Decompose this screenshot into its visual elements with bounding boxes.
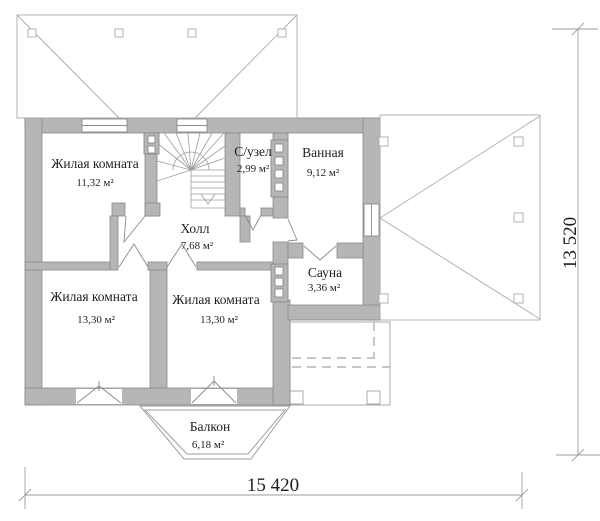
shaft-duct (275, 278, 283, 286)
wall-wc-south (240, 208, 245, 216)
roof-right-hip-line (380, 116, 540, 218)
room-area-bathroom: 9,12 м² (307, 167, 340, 179)
stair-direction-arrow (201, 194, 215, 204)
roof-post (514, 294, 523, 303)
wall-left (25, 118, 42, 405)
wall-bottom-rooms-partition (150, 270, 167, 388)
room-area-living-top: 11,32 м² (76, 177, 114, 189)
room-label-hall: Холл (181, 221, 210, 236)
roof-right-hip-line (380, 218, 540, 319)
wall-hall-south (197, 262, 273, 270)
shaft-duct (275, 267, 283, 275)
wall-bathroom-south (337, 243, 363, 258)
floor-plan-drawing: Жилая комната 11,32 м² С/узел 2,99 м² Ва… (0, 0, 600, 521)
roof-right (379, 115, 540, 320)
shaft-duct (148, 146, 155, 153)
door-living-bottom-left (119, 244, 148, 267)
roof-post (28, 29, 36, 37)
wall-room-top-left-south (25, 262, 110, 270)
roof-post (278, 29, 286, 37)
window-bottom-left-gap (76, 389, 122, 404)
stair-tread (191, 133, 212, 170)
shaft-duct (275, 157, 283, 165)
stair-tread (157, 170, 191, 181)
door-living-top (124, 216, 145, 242)
wall-hall-south (148, 262, 167, 270)
roof-post (188, 29, 196, 37)
wall-hall-east (240, 216, 250, 242)
roof-post (379, 294, 388, 303)
shaft-duct (275, 170, 283, 178)
shaft-duct (275, 144, 283, 152)
door-bathroom (288, 219, 297, 241)
wall-east-column (273, 242, 288, 266)
roof-post (514, 213, 523, 222)
wall-hall-north (112, 203, 125, 216)
room-area-balcony: 6,18 м² (192, 439, 225, 451)
floor-plan: Жилая комната 11,32 м² С/узел 2,99 м² Ва… (0, 0, 600, 521)
door-sauna (304, 246, 336, 260)
terrace (290, 322, 390, 405)
shaft-duct (275, 183, 283, 191)
wall-bottom (25, 388, 290, 405)
room-label-sauna: Сауна (308, 265, 342, 280)
wall-east-column (273, 300, 290, 405)
shaft-duct (148, 136, 155, 143)
terrace-outline (290, 322, 390, 405)
wall-bathroom-south (288, 243, 303, 258)
roof-top (17, 15, 297, 118)
room-area-sauna: 3,36 м² (308, 282, 341, 294)
room-area-living-bottom-left: 13,30 м² (77, 314, 115, 326)
room-label-bathroom: Ванная (302, 145, 344, 160)
room-label-living-bottom-left: Жилая комната (50, 289, 137, 304)
doors (119, 215, 336, 267)
room-label-balcony: Балкон (190, 419, 230, 434)
roof-top-outline (17, 15, 297, 118)
shaft-duct (275, 289, 283, 297)
wall-wc-south (261, 208, 273, 216)
roof-post (379, 137, 388, 146)
wall-hall-west (110, 216, 118, 270)
room-label-wc: С/узел (234, 144, 272, 159)
dimension-right: 13 520 (552, 23, 600, 461)
roof-post (115, 29, 123, 37)
room-label-living-top: Жилая комната (51, 156, 138, 171)
dim-width-label: 15 420 (247, 475, 299, 496)
staircase (157, 133, 225, 208)
dim-height-label: 13 520 (560, 217, 581, 269)
room-label-living-bottom-right: Жилая комната (172, 292, 259, 307)
room-area-wc: 2,99 м² (237, 163, 270, 175)
wall-sauna-south (288, 305, 380, 320)
dimension-bottom: 15 420 (19, 467, 528, 509)
room-area-hall: 7,68 м² (181, 240, 214, 252)
wall-hall-north (145, 203, 160, 216)
room-area-living-bottom-right: 13,30 м² (200, 314, 238, 326)
roof-post (514, 137, 523, 146)
